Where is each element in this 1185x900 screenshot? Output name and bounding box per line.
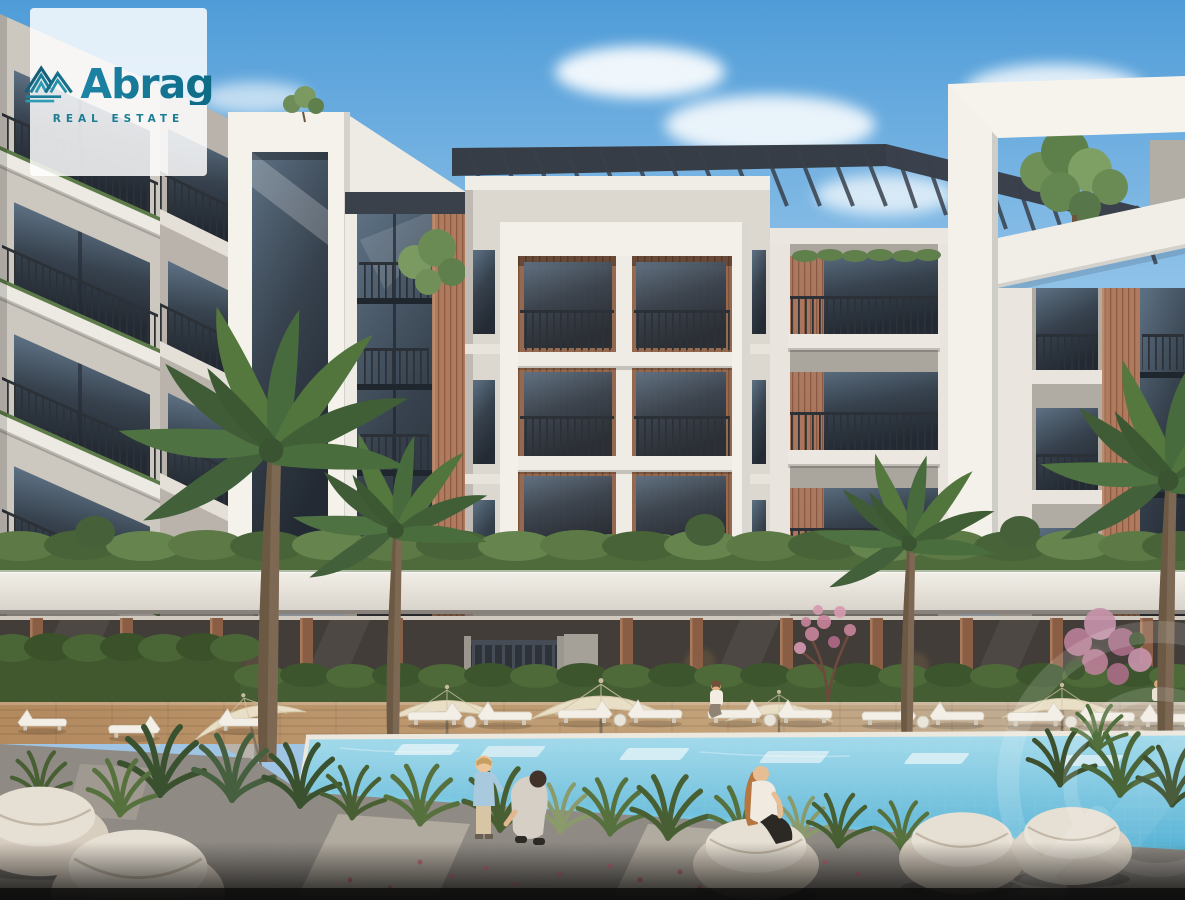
render-image: Abrag REAL ESTATE <box>0 0 1185 900</box>
brand-name: Abrag <box>80 64 213 105</box>
layered-peaks-logo-icon <box>23 59 75 109</box>
brand-logo-card: Abrag REAL ESTATE <box>30 8 207 176</box>
brand-tagline: REAL ESTATE <box>53 113 184 125</box>
floor-slab-band <box>0 570 1185 618</box>
bottom-edge-bar <box>0 888 1185 900</box>
